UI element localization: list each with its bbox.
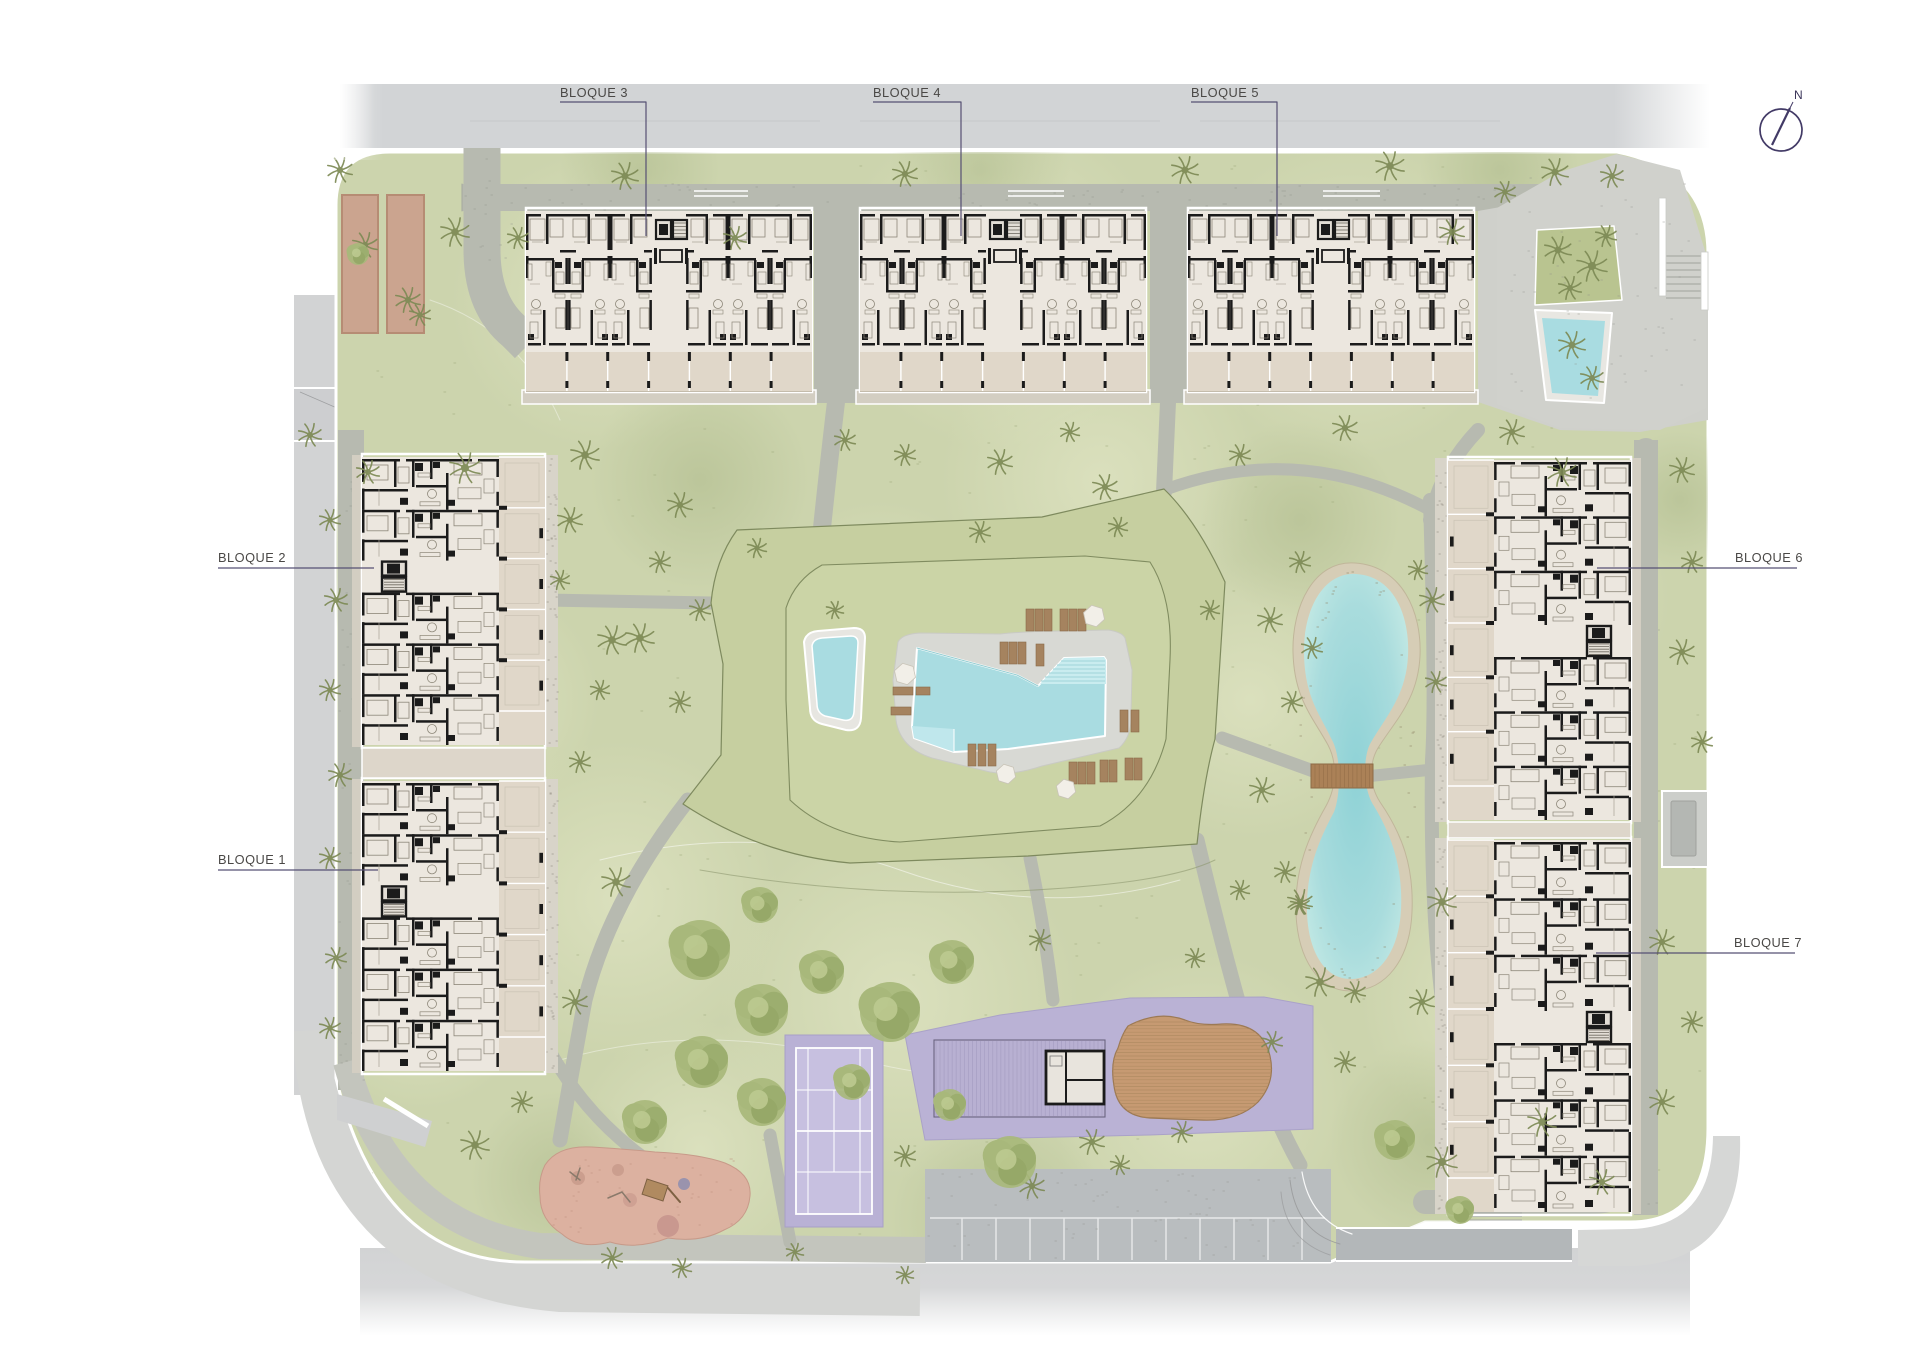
svg-text:BLOQUE 1: BLOQUE 1: [218, 852, 286, 867]
svg-text:BLOQUE 7: BLOQUE 7: [1734, 935, 1802, 950]
svg-text:BLOQUE 6: BLOQUE 6: [1735, 550, 1803, 565]
svg-text:BLOQUE 3: BLOQUE 3: [560, 85, 628, 100]
svg-text:BLOQUE 2: BLOQUE 2: [218, 550, 286, 565]
svg-text:N: N: [1794, 88, 1803, 102]
svg-text:BLOQUE 4: BLOQUE 4: [873, 85, 941, 100]
svg-text:BLOQUE 5: BLOQUE 5: [1191, 85, 1259, 100]
